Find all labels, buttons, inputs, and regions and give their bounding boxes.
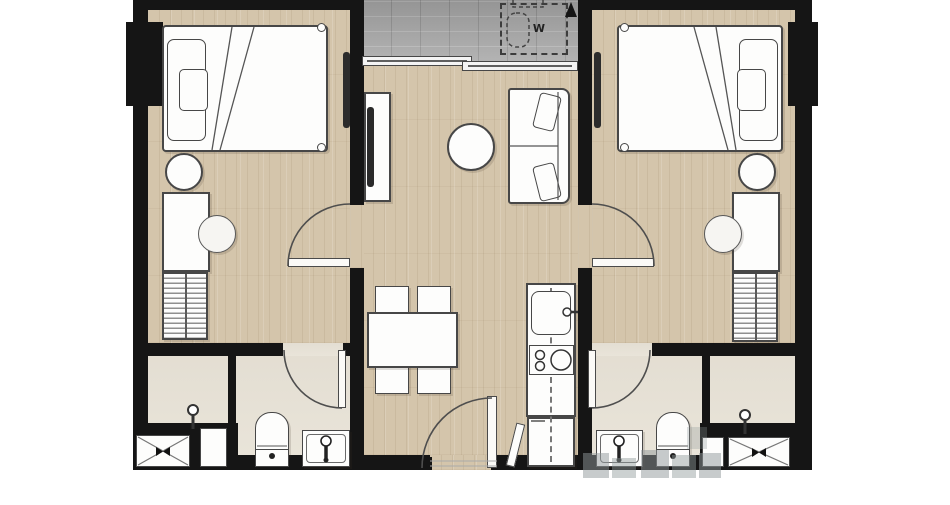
watermark-block — [699, 453, 721, 478]
wall-left-pier — [126, 22, 163, 106]
pillow — [737, 69, 766, 111]
entrance-jamb — [422, 457, 432, 470]
wall-top-left — [140, 0, 350, 10]
doorway-floor — [283, 343, 343, 356]
bed-post — [317, 143, 326, 152]
coffee-table — [447, 123, 495, 171]
shower-tray — [728, 437, 790, 467]
dining-chair — [417, 366, 451, 394]
wall-bath-left-top2 — [343, 343, 364, 356]
doorway-floor — [350, 204, 364, 268]
bed-post — [317, 23, 326, 32]
dining-chair — [375, 286, 409, 313]
desk-chair-left — [198, 215, 236, 253]
wall-bedroom-right-upper — [578, 0, 592, 205]
door-leaf-bath-left — [338, 350, 346, 408]
doorway-floor — [578, 204, 592, 268]
bed-post — [620, 143, 629, 152]
sliding-door-panel — [362, 56, 472, 66]
door-leaf-bedroom-right — [592, 258, 654, 267]
bathroom-sink — [302, 430, 350, 467]
side-table-left — [165, 153, 203, 191]
watermark-block — [641, 450, 669, 478]
stove — [529, 345, 574, 375]
tv — [367, 107, 374, 187]
dining-table — [367, 312, 458, 368]
door-leaf-bath-right — [588, 350, 596, 408]
bed-post — [620, 23, 629, 32]
wall-shelf-bar — [594, 52, 601, 128]
dining-chair — [417, 286, 451, 313]
kitchen-sink — [531, 291, 571, 335]
wall-bath-left-partition — [228, 348, 236, 425]
dining-chair — [375, 366, 409, 394]
bath-cabinet — [200, 428, 227, 467]
wall-bedroom-left-lower — [350, 268, 364, 455]
door-leaf-bedroom-left — [288, 258, 350, 267]
wall-bedroom-left-upper — [350, 0, 364, 205]
wall-bath-left-top — [133, 343, 283, 356]
watermark-block — [583, 453, 609, 478]
wall-bath-right-partition — [702, 348, 710, 425]
toilet-base — [255, 449, 289, 467]
side-table-right — [738, 153, 776, 191]
wall-bath-right-top — [652, 343, 795, 356]
wardrobe-right — [732, 272, 778, 342]
wardrobe-divider — [755, 274, 757, 340]
wall-top-right — [592, 0, 805, 10]
watermark-block — [687, 427, 707, 449]
doorway-floor — [592, 343, 652, 356]
floor-plan: W — [0, 0, 950, 505]
washer-label: W — [524, 22, 554, 36]
wall-shelf-bar — [343, 52, 350, 128]
watermark-block — [672, 455, 696, 478]
wardrobe-left — [162, 272, 208, 340]
desk-chair-right — [704, 215, 742, 253]
watermark-block — [612, 458, 636, 478]
wardrobe-divider — [185, 274, 187, 338]
door-leaf-entrance — [487, 396, 497, 468]
pillow — [179, 69, 208, 111]
sliding-door-panel — [462, 61, 578, 71]
wall-right-pier — [788, 22, 818, 106]
shower-tray — [136, 435, 190, 467]
